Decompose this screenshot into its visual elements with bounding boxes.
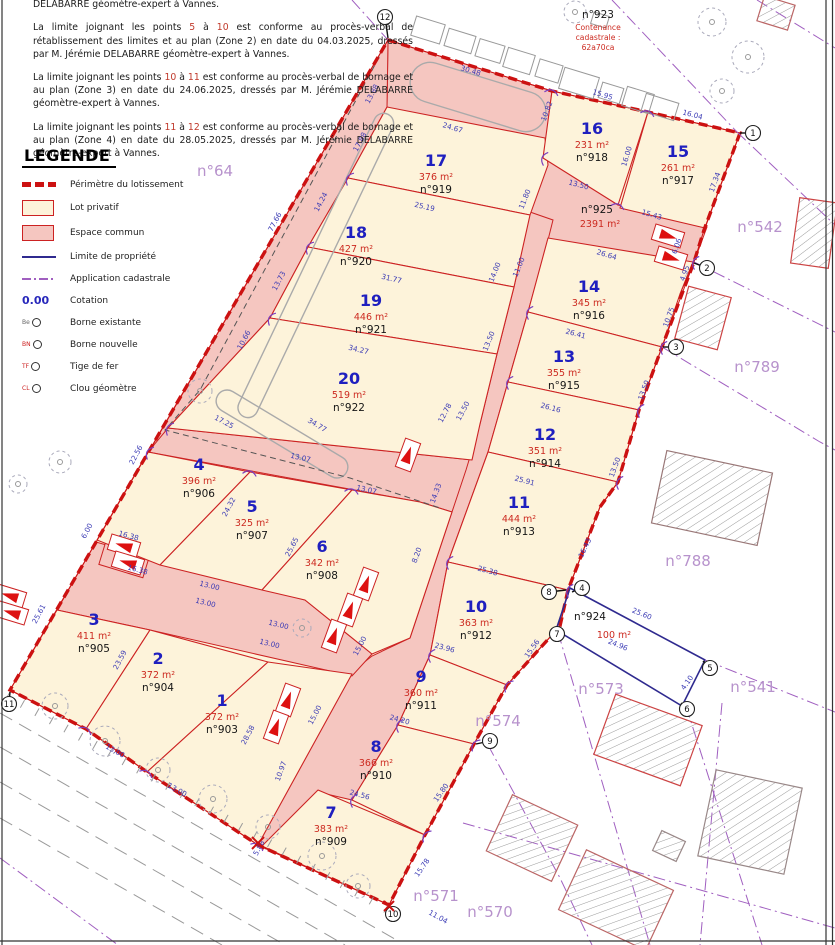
commun-swatch (22, 225, 54, 241)
lot-area: 372 m² (141, 670, 175, 681)
legend-swatch (22, 225, 62, 241)
point-reference: 11 (188, 72, 200, 83)
marker-circle-icon (32, 384, 41, 393)
tree-icon (732, 41, 764, 73)
perimetre-swatch (22, 182, 56, 187)
point-reference: 11 (164, 122, 176, 133)
legend-item-borne: BeBorne existante (22, 316, 227, 329)
lot-area: 366 m² (359, 758, 393, 769)
lot-number: 8 (370, 737, 381, 756)
lot-parcel: n°905 (78, 643, 110, 655)
dimension-label: 16.04 (682, 108, 705, 122)
parcel-n924-area: 100 m² (597, 630, 631, 641)
legend-item-lot: Lot privatif (22, 200, 227, 216)
lot-number: 12 (534, 425, 556, 444)
point-number: 9 (487, 737, 492, 747)
lot-parcel: n°915 (548, 380, 580, 392)
dimension-label: 6.00 (79, 521, 95, 540)
cadastral-building (475, 39, 505, 64)
legend-item-cadastrale: Application cadastrale (22, 272, 227, 285)
note-text: à (195, 22, 217, 33)
talus-tick (122, 758, 126, 766)
legend-swatch (22, 278, 62, 280)
neighbor-parcel-label: n°574 (475, 712, 521, 730)
neighbor-parcel-label: n°541 (730, 678, 776, 696)
lot-area: 345 m² (572, 298, 606, 309)
lot-parcel: n°916 (573, 310, 605, 322)
lot-area: 396 m² (182, 476, 216, 487)
hatched-building (486, 795, 577, 882)
parcel-n923-label: n°923 (582, 9, 614, 21)
boundary-point: 2 (694, 261, 715, 276)
marker-circle-icon (32, 318, 41, 327)
lot-number: 15 (667, 142, 689, 161)
note-paragraph: La limite joignant les points 5 à 10 est… (33, 21, 413, 61)
legend-label: Périmètre du lotissement (62, 180, 183, 190)
legend-label: Borne nouvelle (62, 340, 138, 350)
lot-area: 372 m² (205, 712, 239, 723)
lot-number: 9 (415, 667, 426, 686)
legend-item-limite: Limite de propriété (22, 250, 227, 263)
parcel-n923-note: 62a70ca (582, 43, 615, 52)
boundary-point: 11 (2, 692, 17, 712)
lot-parcel: n°912 (460, 630, 492, 642)
neighbor-parcel-label: n°542 (737, 218, 783, 236)
legend-label: Borne existante (62, 318, 141, 328)
lot-parcel: n°917 (662, 175, 694, 187)
lot-area: 351 m² (528, 446, 562, 457)
legend-item-borne: TFTige de fer (22, 360, 227, 373)
talus-tick (93, 741, 97, 749)
talus-tick (35, 708, 39, 716)
tree-center-icon (710, 20, 715, 25)
legend-label: Espace commun (62, 228, 144, 238)
lot-area: 355 m² (547, 368, 581, 379)
legend-items: Périmètre du lotissementLot privatifEspa… (22, 178, 227, 395)
lot-area: 325 m² (235, 518, 269, 529)
tree-center-icon (58, 460, 63, 465)
lot-number: 18 (345, 223, 367, 242)
dimension-label: 25.60 (631, 606, 654, 622)
tree-icon (49, 451, 71, 473)
talus-tick (64, 725, 68, 733)
lot-number: 5 (246, 497, 257, 516)
limite-swatch (22, 256, 56, 258)
legend-item-cotation: 0.00Cotation (22, 294, 227, 307)
lot-number: 19 (360, 291, 382, 310)
point-number: 8 (546, 588, 551, 598)
lot-parcel: n°907 (236, 530, 268, 542)
marker-sample-icon: CL (22, 384, 41, 393)
note-text: à (176, 122, 188, 133)
note-paragraph: La limite joignant les points 10 à 11 es… (33, 71, 413, 111)
lot-area: 261 m² (661, 163, 695, 174)
lot-area: 363 m² (459, 618, 493, 629)
note-text: La limite joignant les points (33, 22, 189, 33)
hatched-building (791, 198, 835, 269)
marker-sample-icon: BN (22, 340, 42, 349)
parcel-n925-area: 2391 m² (580, 219, 620, 230)
tree-center-icon (746, 55, 751, 60)
lot-area: 231 m² (575, 140, 609, 151)
lot-area: 411 m² (77, 631, 111, 642)
lot-parcel: n°908 (306, 570, 338, 582)
cadastral-building (535, 59, 563, 83)
point-number: 11 (4, 700, 15, 710)
neighbor-parcel-label: n°570 (467, 903, 513, 921)
legend-swatch (22, 256, 62, 258)
lot-parcel: n°913 (503, 526, 535, 538)
talus-tick (20, 700, 24, 708)
lot-parcel: n°904 (142, 682, 174, 694)
lot-number: 11 (508, 493, 530, 512)
lot-parcel: n°921 (355, 324, 387, 336)
legend-label: Lot privatif (62, 203, 119, 213)
legend-label: Cotation (62, 296, 108, 306)
lot-parcel: n°910 (360, 770, 392, 782)
point-number: 1 (750, 129, 755, 139)
legend-label: Tige de fer (62, 362, 118, 372)
marker-prefix: TF (22, 363, 29, 370)
point-number: 10 (388, 910, 399, 920)
lot-area: 342 m² (305, 558, 339, 569)
note-text: à (176, 72, 188, 83)
hatched-building (675, 286, 731, 350)
legend-item-borne: BNBorne nouvelle (22, 338, 227, 351)
lot-swatch (22, 200, 54, 216)
point-reference: 10 (217, 22, 229, 33)
legend-item-perimetre: Périmètre du lotissement (22, 178, 227, 191)
marker-sample-icon: TF (22, 362, 40, 371)
legend-item-commun: Espace commun (22, 225, 227, 241)
lot-number: 7 (325, 803, 336, 822)
lot-parcel: n°914 (529, 458, 561, 470)
lot-number: 16 (581, 119, 603, 138)
lot-area: 444 m² (502, 514, 536, 525)
marker-prefix: Be (22, 319, 30, 326)
legend-title: LEGENDE (22, 146, 116, 168)
marker-prefix: CL (22, 385, 30, 392)
point-number: 2 (704, 264, 709, 274)
legend-swatch: 0.00 (22, 294, 62, 307)
neighbor-parcel-label: n°573 (578, 680, 624, 698)
point-number: 7 (554, 630, 559, 640)
lot-parcel: n°911 (405, 700, 437, 712)
cadastral-plan-sheet: 30.4824.6715.9516.0417.3410.8216.0013.50… (0, 0, 835, 945)
point-number: 6 (684, 705, 689, 715)
legend-swatch: TF (22, 362, 62, 371)
tree-center-icon (720, 89, 725, 94)
lot-parcel: n°906 (183, 488, 215, 500)
cotation-sample: 0.00 (22, 294, 49, 307)
legend-swatch: BN (22, 340, 62, 349)
lot-number: 13 (553, 347, 575, 366)
lot-number: 2 (152, 649, 163, 668)
neighbor-parcel-label: n°571 (413, 887, 459, 905)
lot-parcel: n°903 (206, 724, 238, 736)
dimension-label: 15.78 (412, 856, 431, 878)
lot-parcel: n°919 (420, 184, 452, 196)
neighbor-parcel-label: n°788 (665, 552, 711, 570)
lot-number: 20 (338, 369, 360, 388)
note-text: bornage et au plan (Zone 1) en date du 1… (33, 0, 413, 10)
tree-center-icon (16, 482, 21, 487)
point-number: 4 (579, 584, 584, 594)
tree-center-icon (573, 10, 578, 15)
legend-item-borne: CLClou géomètre (22, 382, 227, 395)
parcel-n925-label: n°925 (581, 204, 613, 216)
tree-icon (698, 8, 726, 36)
legend-label: Clou géomètre (62, 384, 137, 394)
lot-number: 4 (193, 455, 204, 474)
note-paragraph: bornage et au plan (Zone 1) en date du 1… (33, 0, 413, 11)
lot-area: 427 m² (339, 244, 373, 255)
parcel-n923-note: cadastrale : (576, 33, 621, 42)
marker-circle-icon (31, 362, 40, 371)
marker-prefix: BN (22, 341, 31, 348)
lot-parcel: n°918 (576, 152, 608, 164)
legend-swatch: Be (22, 318, 62, 327)
lot-number: 1 (216, 691, 227, 710)
lot-parcel: n°920 (340, 256, 372, 268)
lot-area: 519 m² (332, 390, 366, 401)
legend: LEGENDE Périmètre du lotissementLot priv… (22, 146, 227, 404)
lot-area: 446 m² (354, 312, 388, 323)
survey-notes: bornage et au plan (Zone 1) en date du 1… (33, 0, 413, 170)
hatched-building (559, 850, 674, 945)
lot-area: 383 m² (314, 824, 348, 835)
legend-label: Application cadastrale (62, 274, 170, 284)
boundary-point: 6 (680, 702, 695, 717)
dimension-label: 25.61 (30, 603, 48, 625)
boundary-point: 5 (703, 661, 718, 676)
legend-label: Limite de propriété (62, 252, 156, 262)
legend-swatch: CL (22, 384, 62, 393)
hatched-building (757, 0, 795, 30)
note-text: La limite joignant les points (33, 72, 164, 83)
hatched-building (651, 451, 772, 546)
point-number: 5 (707, 664, 712, 674)
tree-icon (9, 475, 27, 493)
boundary-point: 7 (550, 627, 565, 642)
hatched-building (698, 770, 802, 874)
legend-swatch (22, 182, 62, 187)
lot-number: 17 (425, 151, 447, 170)
hatched-building (653, 831, 686, 862)
lot-area: 376 m² (419, 172, 453, 183)
point-number: 3 (673, 343, 678, 353)
lot-number: 10 (465, 597, 487, 616)
cadastral-building (411, 16, 446, 44)
cadastrale-swatch (22, 278, 56, 280)
lot-parcel: n°922 (333, 402, 365, 414)
parcel-n923-note: Contenance (575, 23, 621, 32)
lot-area: 360 m² (404, 688, 438, 699)
marker-sample-icon: Be (22, 318, 41, 327)
lot-number: 3 (88, 610, 99, 629)
lot-number: 6 (316, 537, 327, 556)
cadastral-building (503, 47, 536, 74)
tree-icon (710, 79, 734, 103)
boundary-point: 4 (572, 581, 590, 596)
dimension-label: 11.04 (427, 908, 450, 926)
legend-swatch (22, 200, 62, 216)
parcel-n924-label: n°924 (574, 611, 606, 623)
lot-number: 14 (578, 277, 600, 296)
marker-circle-icon (33, 340, 42, 349)
note-text: La limite joignant les points (33, 122, 164, 133)
talus-tick (78, 733, 82, 741)
point-reference: 10 (164, 72, 176, 83)
cadastral-building (444, 28, 476, 53)
lot-parcel: n°909 (315, 836, 347, 848)
neighbor-parcel-label: n°789 (734, 358, 780, 376)
point-reference: 12 (188, 122, 200, 133)
